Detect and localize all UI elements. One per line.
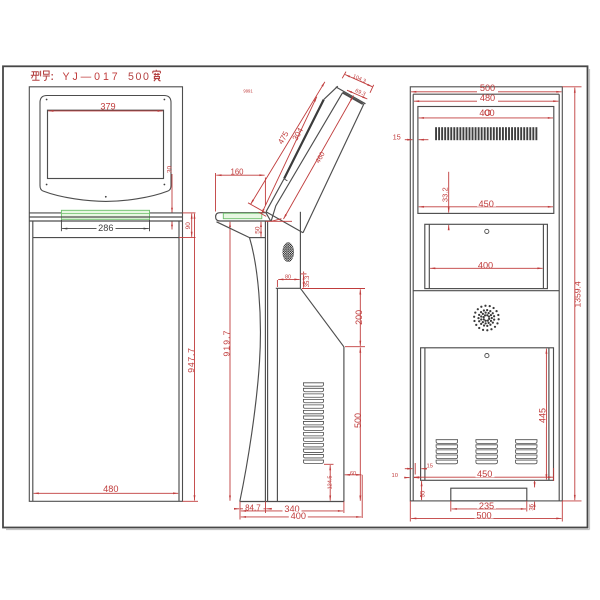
- svg-text:947.7: 947.7: [186, 347, 196, 373]
- svg-text:400: 400: [291, 511, 306, 521]
- svg-text:30: 30: [166, 166, 173, 174]
- svg-text:200: 200: [354, 310, 364, 325]
- svg-text:50: 50: [255, 226, 262, 234]
- svg-text:124.5: 124.5: [328, 476, 334, 490]
- svg-text:9991: 9991: [243, 88, 253, 93]
- svg-text:500: 500: [128, 71, 150, 83]
- svg-text:80: 80: [285, 275, 291, 281]
- svg-text:36: 36: [530, 503, 536, 510]
- svg-text:480: 480: [103, 484, 118, 494]
- svg-text:379: 379: [100, 101, 115, 111]
- svg-text:480: 480: [480, 93, 495, 103]
- svg-text:445: 445: [538, 408, 548, 423]
- svg-text:15: 15: [393, 133, 401, 142]
- svg-text:1359.4: 1359.4: [572, 281, 582, 308]
- svg-text:YJ—017: YJ—017: [63, 71, 121, 83]
- svg-text:450: 450: [479, 199, 494, 209]
- svg-text:15: 15: [427, 463, 433, 469]
- svg-text:160: 160: [230, 168, 244, 177]
- svg-text:286: 286: [98, 223, 113, 233]
- svg-text:500: 500: [480, 83, 495, 93]
- svg-text:500: 500: [353, 413, 363, 428]
- svg-text:35.3: 35.3: [305, 275, 311, 287]
- svg-text:500: 500: [476, 510, 491, 520]
- svg-text:10: 10: [392, 473, 398, 479]
- svg-text:919.7: 919.7: [222, 329, 232, 356]
- svg-text:33.2: 33.2: [440, 187, 449, 202]
- svg-text:400: 400: [478, 260, 493, 270]
- svg-text:60: 60: [350, 471, 356, 477]
- svg-text:55: 55: [421, 490, 427, 497]
- svg-text:400: 400: [479, 108, 494, 118]
- svg-text:90: 90: [185, 222, 192, 230]
- svg-text:450: 450: [477, 469, 492, 479]
